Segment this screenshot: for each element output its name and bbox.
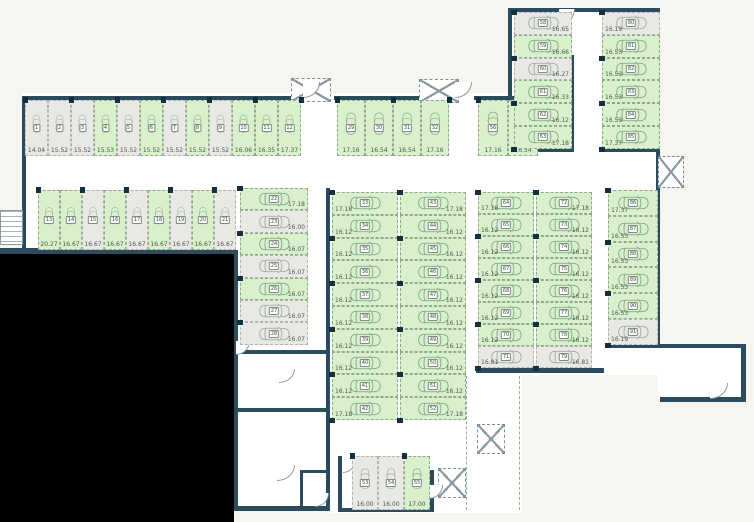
- space-number: 84: [626, 111, 636, 119]
- column-pillar: [402, 453, 407, 458]
- parking-space-36[interactable]: 3616.12: [332, 260, 398, 283]
- space-number: 42: [360, 405, 370, 413]
- space-number: 65: [501, 221, 511, 229]
- space-area: 16.12: [481, 338, 498, 344]
- space-number: 21: [220, 216, 230, 224]
- space-area: 16.53: [611, 259, 628, 265]
- column-pillar: [329, 372, 334, 377]
- space-number: 30: [374, 124, 384, 132]
- parking-space-78[interactable]: 7816.12: [536, 324, 592, 346]
- space-area: 17.37: [611, 208, 628, 214]
- parking-space-35[interactable]: 3516.12: [332, 238, 398, 261]
- space-number: 18: [154, 216, 164, 224]
- parking-space-61[interactable]: 6116.33: [514, 80, 572, 103]
- space-area: 16.12: [481, 272, 498, 278]
- space-number: 19: [176, 216, 186, 224]
- parking-space-21[interactable]: 2116.67: [214, 190, 236, 250]
- space-number: 64: [501, 199, 511, 207]
- space-area: 17.18: [446, 412, 463, 418]
- parking-space-76[interactable]: 7616.12: [536, 280, 592, 302]
- parking-space-31[interactable]: 3116.54: [393, 100, 421, 156]
- space-area: 16.12: [572, 294, 589, 300]
- space-area: 17.18: [552, 141, 569, 147]
- parking-space-50[interactable]: 5016.12: [400, 352, 466, 375]
- space-area: 16.12: [572, 272, 589, 278]
- column-pillar: [168, 187, 173, 192]
- parking-space-87[interactable]: 8716.53: [608, 216, 658, 242]
- space-number: 10: [238, 124, 248, 132]
- parking-space-4[interactable]: 415.53: [94, 100, 117, 156]
- space-area: 16.19: [611, 337, 628, 343]
- parking-space-42[interactable]: 4217.18: [332, 397, 398, 420]
- space-area: 16.12: [446, 321, 463, 327]
- space-number: 23: [269, 218, 279, 226]
- column-pillar: [605, 343, 610, 348]
- wall: [234, 250, 238, 511]
- space-area: 16.67: [193, 242, 213, 248]
- parking-space-28[interactable]: 2816.07: [240, 322, 308, 344]
- space-area: 16.67: [149, 242, 169, 248]
- space-number: 22: [269, 195, 279, 203]
- parking-space-40[interactable]: 4016.12: [332, 352, 398, 375]
- parking-space-81[interactable]: 8116.53: [602, 35, 660, 58]
- column-pillar: [475, 190, 480, 195]
- parking-space-29[interactable]: 2917.16: [337, 100, 365, 156]
- space-number: 83: [626, 88, 636, 96]
- space-area: 16.53: [611, 285, 628, 291]
- column-pillar: [253, 97, 258, 102]
- wall: [741, 348, 746, 401]
- parking-space-70[interactable]: 7016.12: [478, 324, 534, 346]
- space-area: 16.07: [288, 247, 305, 253]
- space-area: 16.12: [481, 294, 498, 300]
- parking-space-86[interactable]: 8617.37: [608, 190, 658, 216]
- stairs-icon: [0, 210, 23, 245]
- parking-space-90[interactable]: 9016.53: [608, 293, 658, 319]
- space-area: 16.00: [288, 225, 305, 231]
- parking-space-48[interactable]: 4816.12: [400, 306, 466, 329]
- space-number: 2: [56, 124, 63, 132]
- space-number: 5: [125, 124, 132, 132]
- space-number: 77: [559, 309, 569, 317]
- parking-space-15[interactable]: 1516.67: [82, 190, 104, 250]
- space-number: 24: [269, 240, 279, 248]
- space-number: 17: [132, 216, 142, 224]
- space-area: 16.12: [335, 252, 352, 258]
- column-pillar: [511, 10, 516, 15]
- space-number: 52: [428, 405, 438, 413]
- parking-space-67[interactable]: 6716.12: [478, 258, 534, 280]
- space-area: 15.52: [72, 148, 93, 154]
- space-area: 16.12: [335, 366, 352, 372]
- parking-space-32[interactable]: 3217.16: [421, 100, 449, 156]
- space-number: 14: [66, 216, 76, 224]
- space-area: 16.12: [572, 228, 589, 234]
- column-pillar: [533, 190, 538, 195]
- space-number: 31: [402, 124, 412, 132]
- column-pillar: [533, 366, 538, 371]
- space-number: 76: [559, 287, 569, 295]
- parking-space-84[interactable]: 8416.53: [602, 103, 660, 126]
- parking-space-68[interactable]: 6816.12: [478, 280, 534, 302]
- space-number: 62: [538, 111, 548, 119]
- space-number: 3: [79, 124, 86, 132]
- space-number: 50: [428, 359, 438, 367]
- parking-space-3[interactable]: 315.52: [71, 100, 94, 156]
- space-number: 1: [33, 124, 40, 132]
- space-area: 16.65: [552, 27, 569, 33]
- space-area: 16.67: [105, 242, 125, 248]
- column-pillar: [299, 97, 304, 102]
- wall: [660, 397, 746, 402]
- shaft-icon: [438, 468, 466, 498]
- space-area: 17.18: [446, 207, 463, 213]
- column-pillar: [237, 320, 242, 325]
- space-area: 16.67: [171, 242, 191, 248]
- column-pillar: [599, 10, 604, 15]
- space-number: 48: [428, 313, 438, 321]
- parking-space-24[interactable]: 2416.07: [240, 233, 308, 255]
- space-number: 72: [559, 199, 569, 207]
- space-area: 16.67: [83, 242, 103, 248]
- parking-space-47[interactable]: 4716.12: [400, 283, 466, 306]
- parking-space-83[interactable]: 8316.53: [602, 80, 660, 103]
- space-area: 16.12: [335, 389, 352, 395]
- space-number: 79: [559, 353, 569, 361]
- space-number: 37: [360, 291, 370, 299]
- space-area: 17.18: [572, 206, 589, 212]
- space-area: 16.06: [233, 148, 254, 154]
- space-number: 51: [428, 382, 438, 390]
- parking-space-41[interactable]: 4116.12: [332, 374, 398, 397]
- wall: [234, 408, 330, 412]
- space-area: 16.53: [605, 72, 622, 78]
- column-pillar: [207, 97, 212, 102]
- space-area: 16.00: [353, 502, 377, 508]
- space-number: 25: [269, 262, 279, 270]
- parking-space-30[interactable]: 3016.54: [365, 100, 393, 156]
- parking-space-73[interactable]: 7316.12: [536, 214, 592, 236]
- parking-space-8[interactable]: 815.52: [186, 100, 209, 156]
- space-number: 11: [261, 124, 271, 132]
- lane-dash: [519, 376, 520, 510]
- column-pillar: [397, 190, 402, 195]
- space-area: 16.07: [288, 292, 305, 298]
- space-number: 80: [626, 19, 636, 27]
- parking-space-46[interactable]: 4616.12: [400, 260, 466, 283]
- space-number: 36: [360, 268, 370, 276]
- parking-space-82[interactable]: 8216.53: [602, 58, 660, 81]
- parking-space-56[interactable]: 5617.16: [478, 100, 508, 156]
- space-area: 16.12: [481, 250, 498, 256]
- space-number: 82: [626, 65, 636, 73]
- column-pillar: [329, 281, 334, 286]
- space-area: 17.18: [481, 206, 498, 212]
- space-area: 15.52: [210, 148, 231, 154]
- column-pillar: [69, 97, 74, 102]
- space-number: 40: [360, 359, 370, 367]
- parking-space-26[interactable]: 2616.07: [240, 278, 308, 300]
- parking-space-6[interactable]: 615.52: [140, 100, 163, 156]
- column-pillar: [329, 327, 334, 332]
- space-area: 17.37: [605, 141, 622, 147]
- space-area: 16.12: [481, 228, 498, 234]
- space-area: 16.12: [552, 118, 569, 124]
- space-number: 54: [386, 479, 396, 487]
- parking-space-45[interactable]: 4516.12: [400, 238, 466, 261]
- space-number: 8: [194, 124, 201, 132]
- parking-floor-plan: 114.04215.52315.52415.53515.52615.52715.…: [0, 0, 754, 522]
- space-number: 78: [559, 331, 569, 339]
- space-number: 43: [428, 199, 438, 207]
- parking-space-91[interactable]: 9116.19: [608, 319, 658, 345]
- space-area: 16.12: [446, 252, 463, 258]
- space-area: 15.53: [95, 148, 116, 154]
- space-area: 17.18: [335, 412, 352, 418]
- space-number: 38: [360, 313, 370, 321]
- space-area: 16.35: [256, 148, 277, 154]
- parking-space-20[interactable]: 2016.67: [192, 190, 214, 250]
- column-pillar: [533, 234, 538, 239]
- wall: [338, 456, 342, 512]
- parking-space-72[interactable]: 7217.18: [536, 192, 592, 214]
- space-area: 16.81: [481, 360, 498, 366]
- parking-space-12[interactable]: 1217.37: [278, 100, 301, 156]
- column-pillar: [397, 418, 402, 423]
- parking-space-14[interactable]: 1416.67: [60, 190, 82, 250]
- parking-space-1[interactable]: 114.04: [25, 100, 48, 156]
- space-area: 15.52: [118, 148, 139, 154]
- space-number: 69: [501, 309, 511, 317]
- parking-space-10[interactable]: 1016.06: [232, 100, 255, 156]
- parking-space-75[interactable]: 7516.12: [536, 258, 592, 280]
- space-area: 16.67: [61, 242, 81, 248]
- space-number: 28: [269, 330, 279, 338]
- column-pillar: [237, 231, 242, 236]
- space-area: 16.12: [446, 230, 463, 236]
- parking-space-59[interactable]: 5916.66: [514, 35, 572, 58]
- parking-space-53[interactable]: 5316.00: [352, 456, 378, 510]
- parking-space-55[interactable]: 5517.00: [404, 456, 430, 510]
- wall: [234, 350, 330, 354]
- space-number: 70: [501, 331, 511, 339]
- parking-space-80[interactable]: 8016.19: [602, 12, 660, 35]
- parking-space-9[interactable]: 915.52: [209, 100, 232, 156]
- column-pillar: [397, 281, 402, 286]
- space-number: 74: [559, 243, 569, 251]
- column-pillar: [511, 56, 516, 61]
- space-area: 16.54: [394, 148, 420, 154]
- space-number: 58: [538, 19, 548, 27]
- column-pillar: [511, 147, 516, 152]
- space-number: 15: [88, 216, 98, 224]
- space-area: 16.12: [572, 338, 589, 344]
- space-area: 16.12: [335, 275, 352, 281]
- parking-space-37[interactable]: 3716.12: [332, 283, 398, 306]
- parking-space-17[interactable]: 1716.67: [126, 190, 148, 250]
- parking-space-58[interactable]: 5816.65: [514, 12, 572, 35]
- column-pillar: [329, 418, 334, 423]
- space-number: 7: [171, 124, 178, 132]
- space-area: 16.53: [605, 50, 622, 56]
- space-area: 16.12: [446, 366, 463, 372]
- space-area: 14.04: [26, 148, 47, 154]
- void-area: [0, 252, 234, 522]
- column-pillar: [533, 322, 538, 327]
- parking-space-51[interactable]: 5116.12: [400, 374, 466, 397]
- space-number: 71: [501, 353, 511, 361]
- parking-space-89[interactable]: 8916.53: [608, 267, 658, 293]
- space-number: 44: [428, 222, 438, 230]
- column-pillar: [115, 97, 120, 102]
- space-number: 6: [148, 124, 155, 132]
- space-number: 34: [360, 222, 370, 230]
- space-number: 63: [538, 133, 548, 141]
- column-pillar: [212, 187, 217, 192]
- space-area: 16.53: [611, 234, 628, 240]
- parking-space-77[interactable]: 7716.12: [536, 302, 592, 324]
- column-pillar: [476, 97, 481, 102]
- space-area: 15.52: [187, 148, 208, 154]
- parking-space-7[interactable]: 715.52: [163, 100, 186, 156]
- space-number: 33: [360, 199, 370, 207]
- space-number: 39: [360, 336, 370, 344]
- column-pillar: [397, 236, 402, 241]
- space-number: 75: [559, 265, 569, 273]
- space-number: 35: [360, 245, 370, 253]
- parking-space-13[interactable]: 1320.27: [38, 190, 60, 250]
- parking-space-52[interactable]: 5217.18: [400, 397, 466, 420]
- column-pillar: [161, 97, 166, 102]
- space-area: 16.81: [572, 360, 589, 366]
- parking-space-19[interactable]: 1916.67: [170, 190, 192, 250]
- space-area: 16.12: [335, 298, 352, 304]
- space-number: 86: [628, 199, 638, 207]
- space-number: 91: [628, 328, 638, 336]
- parking-space-64[interactable]: 6417.18: [478, 192, 534, 214]
- parking-space-22[interactable]: 2217.18: [240, 188, 308, 210]
- shaft-icon: [477, 424, 505, 454]
- space-number: 89: [628, 276, 638, 284]
- parking-space-11[interactable]: 1116.35: [255, 100, 278, 156]
- space-number: 67: [501, 265, 511, 273]
- parking-space-60[interactable]: 6016.27: [514, 58, 572, 81]
- space-area: 16.53: [611, 311, 628, 317]
- space-area: 20.27: [39, 242, 59, 248]
- space-area: 16.33: [552, 95, 569, 101]
- space-number: 27: [269, 307, 279, 315]
- parking-space-62[interactable]: 6216.12: [514, 103, 572, 126]
- lane-dash: [466, 376, 467, 510]
- column-pillar: [397, 372, 402, 377]
- space-area: 15.52: [164, 148, 185, 154]
- parking-space-38[interactable]: 3816.12: [332, 306, 398, 329]
- column-pillar: [36, 187, 41, 192]
- space-number: 90: [628, 302, 638, 310]
- space-number: 41: [360, 382, 370, 390]
- space-area: 17.18: [335, 207, 352, 213]
- parking-space-74[interactable]: 7416.12: [536, 236, 592, 258]
- parking-space-16[interactable]: 1616.67: [104, 190, 126, 250]
- parking-space-79[interactable]: 7916.81: [536, 346, 592, 368]
- parking-space-49[interactable]: 4916.12: [400, 329, 466, 352]
- space-area: 17.00: [405, 502, 429, 508]
- space-area: 17.16: [338, 148, 364, 154]
- space-number: 81: [626, 42, 636, 50]
- space-area: 16.12: [446, 275, 463, 281]
- parking-space-43[interactable]: 4317.18: [400, 192, 466, 215]
- column-pillar: [599, 147, 604, 152]
- column-pillar: [475, 322, 480, 327]
- space-area: 16.66: [552, 50, 569, 56]
- wall: [476, 368, 604, 373]
- parking-space-54[interactable]: 5416.00: [378, 456, 404, 510]
- space-area: 16.12: [335, 344, 352, 350]
- space-area: 16.07: [288, 314, 305, 320]
- parking-space-65[interactable]: 6516.12: [478, 214, 534, 236]
- space-number: 16: [110, 216, 120, 224]
- parking-space-34[interactable]: 3416.12: [332, 215, 398, 238]
- space-number: 49: [428, 336, 438, 344]
- wall: [300, 470, 330, 473]
- space-area: 16.12: [446, 298, 463, 304]
- column-pillar: [335, 97, 340, 102]
- space-area: 16.12: [572, 316, 589, 322]
- column-pillar: [533, 278, 538, 283]
- space-area: 17.18: [288, 202, 305, 208]
- parking-space-85[interactable]: 8517.37: [602, 126, 660, 149]
- space-area: 15.52: [49, 148, 70, 154]
- space-number: 85: [626, 133, 636, 141]
- space-area: 16.12: [481, 316, 498, 322]
- space-area: 16.19: [605, 27, 622, 33]
- space-number: 59: [538, 42, 548, 50]
- parking-space-23[interactable]: 2316.00: [240, 210, 308, 232]
- parking-space-18[interactable]: 1816.67: [148, 190, 170, 250]
- space-number: 53: [360, 479, 370, 487]
- column-pillar: [329, 190, 334, 195]
- parking-space-66[interactable]: 6616.12: [478, 236, 534, 258]
- column-pillar: [605, 188, 610, 193]
- parking-space-25[interactable]: 2516.07: [240, 255, 308, 277]
- parking-space-5[interactable]: 515.52: [117, 100, 140, 156]
- space-area: 16.67: [127, 242, 147, 248]
- column-pillar: [23, 97, 28, 102]
- parking-space-69[interactable]: 6916.12: [478, 302, 534, 324]
- floor-area: [658, 348, 744, 398]
- space-number: 68: [501, 287, 511, 295]
- parking-space-33[interactable]: 3317.18: [332, 192, 398, 215]
- space-area: 15.52: [141, 148, 162, 154]
- parking-space-88[interactable]: 8816.53: [608, 242, 658, 268]
- parking-space-2[interactable]: 215.52: [48, 100, 71, 156]
- space-number: 45: [428, 245, 438, 253]
- parking-space-63[interactable]: 6317.18: [514, 126, 572, 149]
- space-area: 16.27: [552, 72, 569, 78]
- space-area: 16.12: [335, 321, 352, 327]
- space-area: 16.67: [215, 242, 235, 248]
- column-pillar: [80, 187, 85, 192]
- space-area: 16.53: [605, 95, 622, 101]
- space-number: 88: [628, 250, 638, 258]
- space-area: 17.16: [479, 148, 507, 154]
- parking-space-71[interactable]: 7116.81: [478, 346, 534, 368]
- parking-space-39[interactable]: 3916.12: [332, 329, 398, 352]
- space-area: 16.12: [446, 389, 463, 395]
- parking-space-44[interactable]: 4416.12: [400, 215, 466, 238]
- column-pillar: [475, 366, 480, 371]
- parking-space-27[interactable]: 2716.07: [240, 300, 308, 322]
